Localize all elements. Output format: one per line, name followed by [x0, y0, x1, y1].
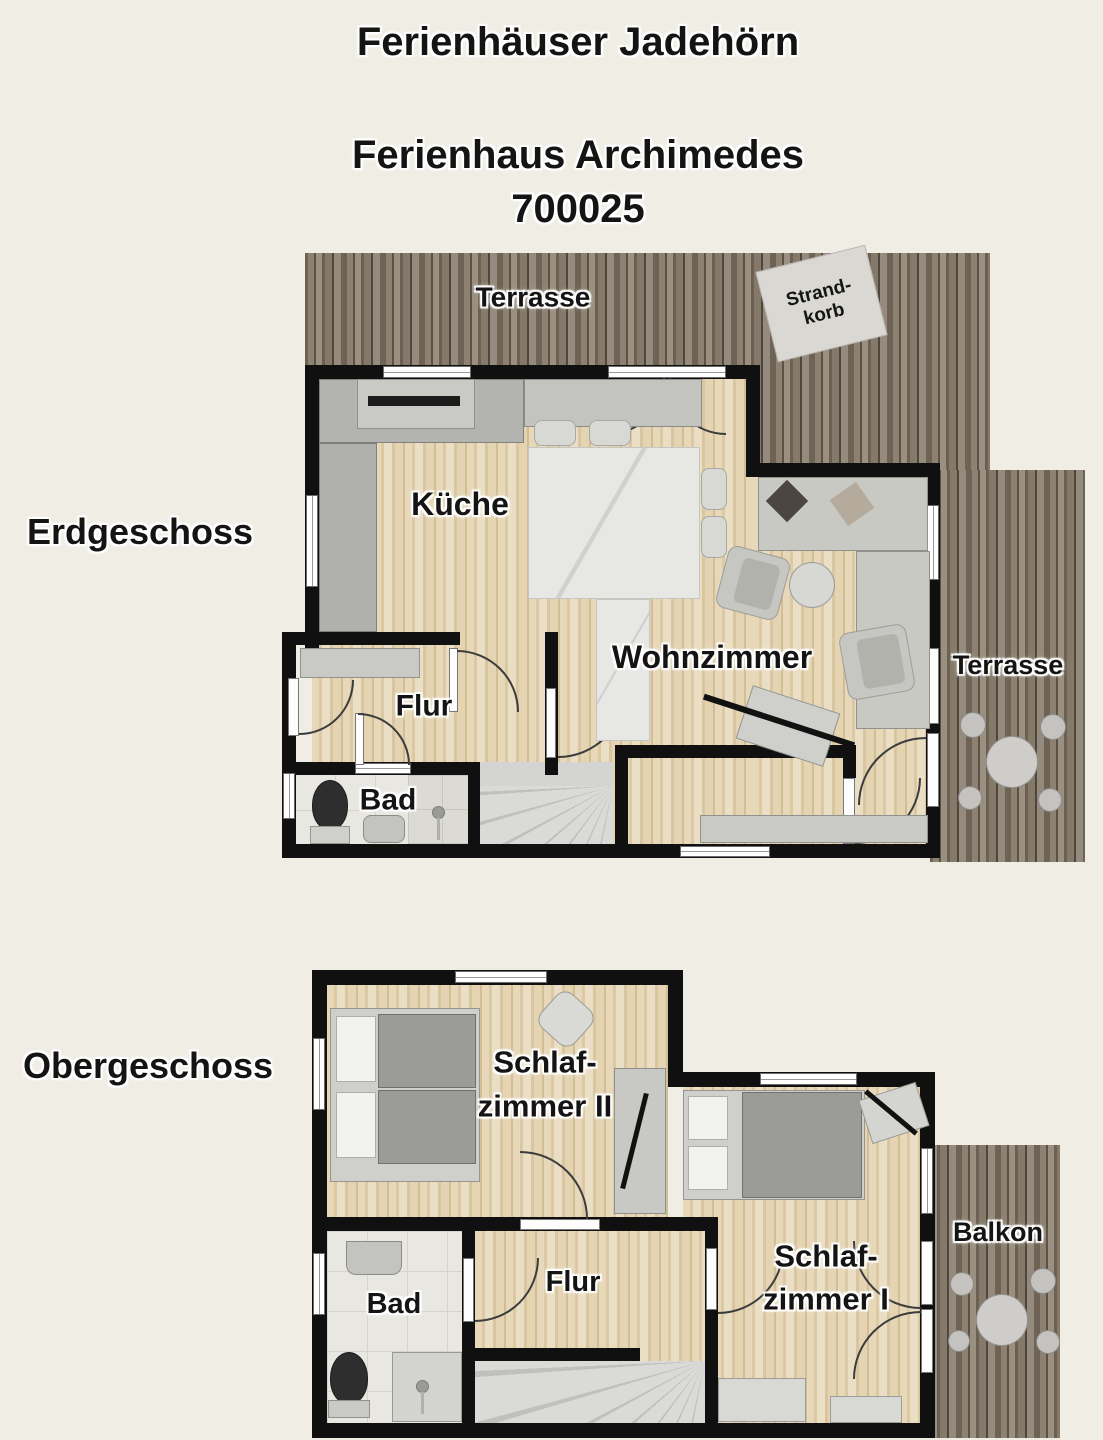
window	[455, 971, 547, 983]
bed-pillow	[688, 1146, 728, 1190]
upper-hallway-label: Flur	[546, 1267, 601, 1297]
toilet	[312, 780, 348, 830]
upper-stairs	[475, 1361, 705, 1423]
bed-blanket	[378, 1090, 476, 1164]
bed-blanket	[378, 1014, 476, 1088]
wall	[475, 1348, 640, 1361]
wall	[843, 745, 856, 778]
dining-chair	[589, 420, 631, 446]
window	[760, 1073, 857, 1085]
window	[680, 846, 770, 857]
wall	[468, 762, 480, 858]
wall	[282, 632, 460, 645]
bathroom-label: Bad	[360, 784, 417, 816]
entrance-door-threshold	[608, 366, 726, 378]
window	[283, 773, 295, 819]
cooktop	[368, 396, 460, 406]
sideboard	[718, 1378, 806, 1422]
terrace-chair	[1038, 788, 1062, 812]
balcony-chair	[1036, 1330, 1060, 1354]
wall	[746, 365, 760, 477]
floor-plan-page: Ferienhäuser Jadehörn Ferienhaus Archime…	[0, 0, 1103, 1440]
dining-chair	[534, 420, 576, 446]
bed-blanket	[742, 1092, 862, 1198]
sideboard	[830, 1396, 902, 1423]
wall	[312, 1217, 717, 1231]
bed-pillow	[688, 1096, 728, 1140]
armchair	[838, 623, 917, 702]
window	[306, 495, 318, 587]
bedroom2-label-line2: zimmer II	[478, 1091, 612, 1124]
toilet	[330, 1352, 368, 1404]
terrace-chair	[960, 712, 986, 738]
wall	[312, 1423, 935, 1438]
hall-sideboard	[300, 648, 420, 678]
door-leaf	[520, 1219, 600, 1230]
toilet-base	[328, 1400, 370, 1418]
living-room-label: Wohnzimmer	[612, 641, 812, 675]
window	[383, 366, 471, 378]
wall	[746, 463, 940, 477]
bed-pillow	[336, 1016, 376, 1082]
house-id: 700025	[511, 188, 644, 230]
bedroom1-label-line2: zimmer I	[763, 1284, 889, 1317]
dining-chair	[701, 468, 727, 510]
wall	[282, 632, 296, 858]
ground-floor-label: Erdgeschoss	[27, 513, 253, 551]
sink	[346, 1241, 402, 1275]
dining-table	[528, 447, 700, 599]
house-title: Ferienhaus Archimedes	[352, 134, 804, 176]
terrace-table	[986, 736, 1038, 788]
sink	[363, 815, 405, 843]
door-leaf	[463, 1258, 474, 1322]
balcony-chair	[948, 1330, 970, 1352]
page-title: Ferienhäuser Jadehörn	[357, 21, 799, 63]
terrace-top-label: Terrasse	[476, 282, 591, 311]
balcony-table	[976, 1294, 1028, 1346]
balcony-chair	[1030, 1268, 1056, 1294]
balcony-label: Balkon	[953, 1218, 1043, 1246]
wall	[615, 758, 628, 858]
shower-hose	[421, 1392, 424, 1414]
window	[313, 1038, 325, 1110]
kitchen-label: Küche	[411, 488, 509, 522]
wardrobe	[614, 1068, 666, 1214]
upper-floor-label: Obergeschoss	[23, 1047, 273, 1085]
door-leaf	[288, 678, 299, 736]
sideboard	[700, 815, 928, 843]
bed-pillow	[336, 1092, 376, 1158]
toilet-base	[310, 826, 350, 844]
window	[921, 1148, 933, 1214]
terrace-chair	[1040, 714, 1066, 740]
door-leaf	[546, 688, 556, 758]
stairs	[480, 786, 613, 846]
wall	[668, 970, 683, 1087]
terrace-right-label: Terrasse	[953, 651, 1064, 679]
coffee-table	[789, 562, 835, 608]
wall	[282, 844, 940, 858]
dining-chair	[701, 516, 727, 558]
hallway-label: Flur	[396, 690, 453, 722]
window	[313, 1253, 325, 1315]
balcony-door-leaf	[921, 1309, 933, 1373]
balcony-door-leaf	[921, 1241, 933, 1305]
shower-hose	[437, 818, 440, 840]
kitchen-counter	[319, 443, 377, 632]
terrace-door-leaf	[927, 733, 939, 807]
terrace-chair	[958, 786, 982, 810]
door-leaf	[706, 1248, 717, 1310]
bedroom1-label-line1: Schlaf-	[774, 1241, 877, 1274]
upper-bathroom-label: Bad	[367, 1289, 422, 1319]
bedroom2-label-line1: Schlaf-	[493, 1047, 596, 1080]
balcony-chair	[950, 1272, 974, 1296]
